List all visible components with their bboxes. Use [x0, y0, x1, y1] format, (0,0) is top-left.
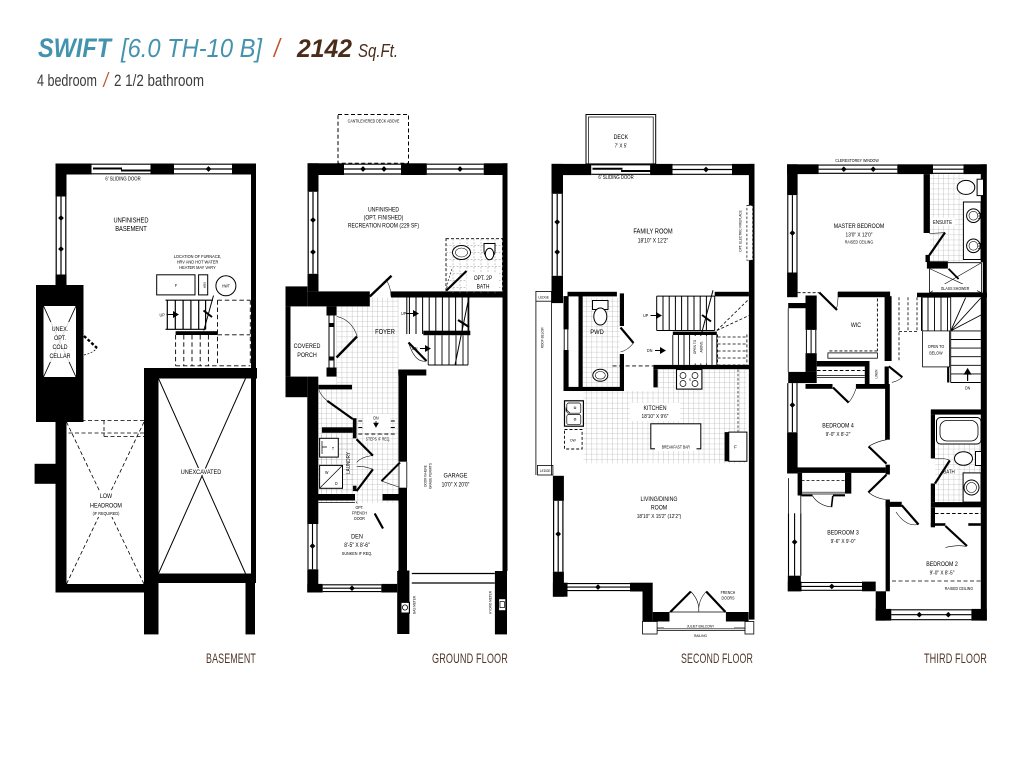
svg-text:PORCH: PORCH	[297, 352, 317, 359]
svg-text:9'-0" X 8'-5": 9'-0" X 8'-5"	[930, 571, 955, 577]
svg-text:ABOVE: ABOVE	[699, 341, 704, 352]
svg-text:BATH: BATH	[477, 285, 490, 291]
svg-text:MASTER BEDROOM: MASTER BEDROOM	[834, 223, 884, 230]
svg-text:/: /	[102, 70, 110, 92]
svg-text:DOOR: DOOR	[354, 516, 365, 521]
svg-text:RECREATION ROOM (229 SF): RECREATION ROOM (229 SF)	[348, 222, 419, 229]
svg-text:STEPS IF REQ.: STEPS IF REQ.	[366, 437, 391, 442]
svg-text:18'10" X 12'2": 18'10" X 12'2"	[638, 239, 669, 245]
svg-text:DOORS: DOORS	[722, 596, 735, 601]
svg-text:THIRD FLOOR: THIRD FLOOR	[924, 650, 987, 666]
svg-text:GROUND FLOOR: GROUND FLOOR	[432, 650, 508, 666]
svg-text:OPT. 2P: OPT. 2P	[474, 276, 492, 282]
svg-text:FRENCH: FRENCH	[721, 590, 736, 595]
svg-text:HEADROOM: HEADROOM	[90, 502, 122, 509]
svg-text:OPT.: OPT.	[54, 335, 66, 342]
svg-text:CLERESTOREY WINDOW: CLERESTOREY WINDOW	[835, 158, 879, 163]
svg-text:LAUNDRY: LAUNDRY	[346, 452, 352, 474]
svg-text:6' SLIDING DOOR: 6' SLIDING DOOR	[598, 175, 634, 181]
svg-text:DN: DN	[965, 386, 970, 391]
svg-text:2 1/2 bathroom: 2 1/2 bathroom	[114, 71, 204, 90]
svg-text:LEDGE: LEDGE	[538, 295, 549, 299]
svg-text:(OPT. FINISHED): (OPT. FINISHED)	[364, 215, 404, 222]
svg-text:ROOM: ROOM	[651, 505, 667, 512]
svg-text:FOYER: FOYER	[375, 329, 395, 336]
svg-text:7' X 5': 7' X 5'	[615, 144, 628, 150]
svg-text:COVERED: COVERED	[294, 343, 321, 350]
svg-text:2142: 2142	[296, 35, 352, 63]
svg-text:WIC: WIC	[851, 322, 862, 329]
svg-text:LINEN: LINEN	[875, 369, 879, 378]
svg-text:BREAKFAST BAR: BREAKFAST BAR	[662, 445, 690, 450]
svg-text:HRV AND HOT WATER: HRV AND HOT WATER	[177, 260, 219, 266]
svg-text:(IF REQUIRED): (IF REQUIRED)	[93, 511, 120, 516]
svg-text:UP: UP	[160, 313, 165, 318]
svg-text:BASEMENT: BASEMENT	[206, 650, 256, 666]
svg-text:Sq.Ft.: Sq.Ft.	[358, 41, 398, 61]
svg-text:HWT: HWT	[222, 284, 230, 289]
svg-text:DEN: DEN	[351, 534, 363, 541]
svg-text:KITCHEN: KITCHEN	[644, 405, 667, 412]
svg-text:JULIET BALCONY: JULIET BALCONY	[687, 623, 715, 628]
svg-text:8'-5" X 8'-6": 8'-5" X 8'-6"	[344, 543, 370, 549]
svg-text:9'-6" X 9'-0": 9'-6" X 9'-0"	[831, 539, 856, 545]
svg-text:DOOR WHERE: DOOR WHERE	[424, 465, 428, 487]
svg-text:GRADE PERMITS: GRADE PERMITS	[429, 463, 433, 489]
svg-text:D: D	[335, 481, 338, 486]
svg-text:UP: UP	[643, 313, 648, 318]
svg-text:RAILING: RAILING	[694, 633, 707, 638]
svg-text:BEDROOM 2: BEDROOM 2	[926, 561, 958, 568]
svg-text:UNFINISHED: UNFINISHED	[113, 218, 148, 225]
svg-text:BATH: BATH	[943, 470, 955, 476]
svg-text:HYDRO METER: HYDRO METER	[489, 591, 493, 614]
svg-text:SECOND FLOOR: SECOND FLOOR	[681, 650, 753, 666]
svg-text:ROOF BELOW: ROOF BELOW	[541, 327, 545, 348]
svg-text:DN: DN	[647, 348, 652, 353]
svg-text:LOW: LOW	[100, 493, 113, 500]
svg-text:OPEN TO: OPEN TO	[928, 344, 945, 349]
svg-text:13'0" X 12'0": 13'0" X 12'0"	[846, 232, 873, 238]
svg-text:ENSUITE: ENSUITE	[933, 220, 953, 226]
svg-text:F: F	[734, 445, 737, 450]
svg-text:9'-0" X 8'-2": 9'-0" X 8'-2"	[826, 432, 851, 438]
svg-text:HEATER MAY VARY: HEATER MAY VARY	[179, 265, 216, 271]
svg-text:RAISED CEILING: RAISED CEILING	[945, 586, 974, 591]
svg-text:CELLAR: CELLAR	[50, 353, 71, 360]
svg-text:BASEMENT: BASEMENT	[115, 226, 147, 233]
svg-text:10'0" X 20'0": 10'0" X 20'0"	[442, 483, 470, 489]
svg-text:F: F	[175, 283, 178, 288]
svg-text:BELOW: BELOW	[929, 351, 943, 356]
svg-text:UP: UP	[401, 311, 406, 316]
svg-text:PWD: PWD	[590, 329, 604, 336]
svg-text:FAMILY ROOM: FAMILY ROOM	[633, 229, 672, 236]
svg-text:UNEXCAVATED: UNEXCAVATED	[181, 469, 222, 476]
svg-text:UNFINISHED: UNFINISHED	[368, 207, 399, 214]
svg-text:GARAGE: GARAGE	[444, 473, 468, 480]
svg-text:DN: DN	[373, 416, 378, 421]
svg-text:SUNKEN IF REQ.: SUNKEN IF REQ.	[342, 551, 372, 556]
svg-text:OPT. ELECTRIC FIREPLACE: OPT. ELECTRIC FIREPLACE	[739, 210, 743, 252]
svg-text:GAS METER: GAS METER	[413, 596, 417, 615]
svg-text:4 bedroom: 4 bedroom	[37, 71, 97, 90]
svg-text:FRENCH: FRENCH	[352, 511, 367, 516]
svg-text:BEDROOM 3: BEDROOM 3	[827, 530, 859, 537]
svg-text:CANTILEVERED DECK ABOVE: CANTILEVERED DECK ABOVE	[348, 119, 400, 124]
svg-text:18'10" X 15'2" (12'2"): 18'10" X 15'2" (12'2")	[637, 514, 682, 520]
svg-text:[6.0 TH-10 B]: [6.0 TH-10 B]	[120, 33, 263, 63]
svg-text:LOCATION OF FURNACE,: LOCATION OF FURNACE,	[174, 254, 222, 260]
svg-text:BEDROOM 4: BEDROOM 4	[822, 423, 854, 430]
svg-text:LEDGE: LEDGE	[540, 469, 551, 473]
svg-text:18'10" X 9'6": 18'10" X 9'6"	[642, 414, 669, 420]
svg-text:COLD: COLD	[53, 344, 68, 351]
svg-text:T: T	[332, 446, 334, 451]
svg-text:RAISED CEILING: RAISED CEILING	[845, 240, 874, 245]
svg-text:OPEN TO: OPEN TO	[692, 340, 697, 354]
svg-text:LIVING/DINING: LIVING/DINING	[641, 496, 678, 503]
svg-text:6' SLIDING DOOR: 6' SLIDING DOOR	[105, 177, 141, 183]
svg-text:/: /	[272, 33, 282, 63]
svg-text:DW: DW	[570, 438, 576, 443]
svg-text:DECK: DECK	[614, 134, 629, 141]
svg-text:UNEX.: UNEX.	[52, 326, 69, 333]
svg-text:HRV: HRV	[203, 281, 207, 288]
svg-text:OPT.: OPT.	[356, 505, 364, 510]
svg-text:SWIFT: SWIFT	[38, 33, 113, 63]
svg-text:GLASS SHOWER: GLASS SHOWER	[941, 286, 970, 291]
